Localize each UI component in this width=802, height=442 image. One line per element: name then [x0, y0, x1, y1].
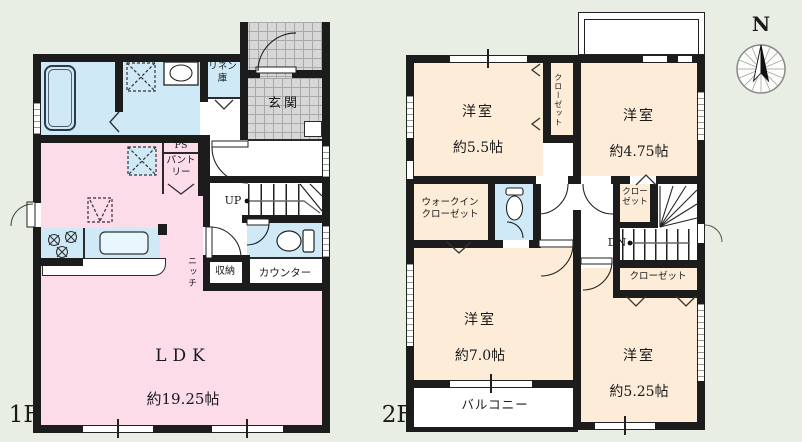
room-label-bedroom-4-75: 洋室 約4.75帖: [584, 91, 694, 178]
toilet-door-1f: [247, 219, 269, 245]
bedroom-size: 約5.5帖: [423, 140, 533, 157]
compass-icon: [737, 45, 785, 93]
room-label-pantry: パント リー: [164, 155, 198, 178]
equipment-space: [128, 147, 156, 175]
room-label-linen: リネン 庫: [204, 61, 241, 84]
bedroom-size: 約7.0帖: [430, 348, 530, 365]
bedroom-size: 約4.75帖: [584, 144, 694, 161]
vanity-sink: [164, 62, 198, 85]
compass-north-label: N: [749, 12, 773, 36]
stairs-1f-path: [245, 199, 320, 213]
bedroom-name: 洋室: [584, 108, 694, 125]
room-label-closet-stairs: クロー ゼット: [616, 187, 654, 208]
front-door: [256, 33, 296, 73]
room-label-bedroom-5-5: 洋室 約5.5帖: [423, 87, 533, 174]
ldk-name: LDK: [131, 346, 235, 367]
pantry-open-marker: [168, 184, 194, 194]
stove-burners: [49, 232, 77, 258]
stairs-2f-path: [628, 241, 690, 246]
room-label-entrance: 玄関: [252, 96, 316, 112]
room-label-bedroom-5-25: 洋室 約5.25帖: [589, 331, 689, 418]
kitchen-back-door: [11, 202, 35, 227]
room-label-ldk: LDK 約19.25帖: [131, 325, 235, 429]
ldk-door: [206, 227, 241, 258]
bedroom-5-25-door: [581, 258, 612, 290]
toilet-door-2f: [507, 222, 523, 238]
bedroom-size: 約5.25帖: [589, 384, 689, 401]
closet-south-open-marker: [676, 296, 696, 306]
ldk-size: 約19.25帖: [131, 390, 235, 408]
stairs-up-label: UP: [221, 194, 245, 207]
washroom-door: [212, 141, 248, 183]
bath-folding-door: [110, 112, 119, 132]
bedroom-name: 洋室: [423, 104, 533, 121]
bedroom-4-75-door: [583, 184, 613, 214]
room-label-closet-south: クローゼット: [622, 271, 694, 283]
room-label-niche: ニッチ: [185, 251, 196, 293]
floorplan-page: 玄関 リネン 庫 PS パント リー UP ニッチ 収納 カウンター LDK 約…: [0, 0, 802, 442]
room-label-closet-between: クローゼット: [553, 65, 563, 135]
closet-folding-door: [532, 64, 540, 76]
room-label-wic: ウォークイン クローゼット: [408, 197, 492, 220]
room-label-ps: PS: [164, 140, 198, 152]
bedroom-5-5-door: [538, 184, 568, 214]
bedroom-name: 洋室: [589, 348, 689, 365]
toilet-fixture-1f: [277, 230, 314, 252]
stairs-2f-winder: [660, 186, 697, 227]
room-label-bedroom-7-0: 洋室 約7.0帖: [430, 295, 530, 382]
room-label-counter: カウンター: [250, 267, 320, 280]
room-label-storage: 収納: [203, 266, 247, 278]
toilet-fixture-2f: [506, 188, 523, 220]
wic-open-marker: [447, 242, 471, 253]
bedroom-name: 洋室: [430, 312, 530, 329]
stairs-down-label: DN: [605, 236, 629, 249]
floor2-label: 2F: [374, 401, 420, 429]
closet-south-open-marker: [626, 296, 646, 306]
floor1-label: 1F: [3, 401, 45, 429]
linen-open-marker: [215, 100, 233, 109]
bathtub: [45, 66, 75, 130]
washing-machine: [127, 63, 155, 91]
kitchen-sink: [100, 232, 148, 254]
stairs-window-swing: [705, 225, 722, 242]
refrigerator-space: [88, 198, 112, 222]
room-label-balcony: バルコニー: [452, 397, 538, 412]
bedroom-7-0-door: [539, 240, 573, 276]
closet-folding-door: [532, 118, 540, 130]
